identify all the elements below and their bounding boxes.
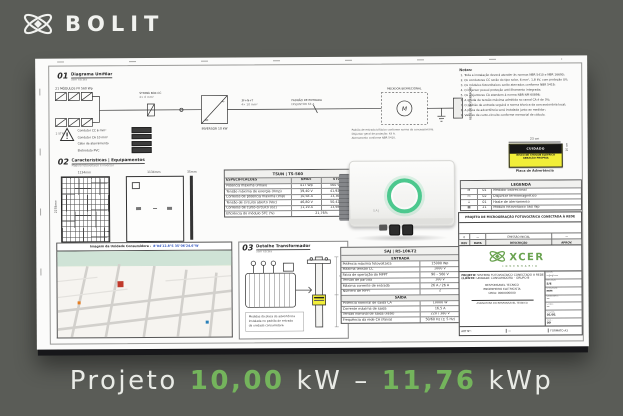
map-streets [57, 250, 233, 337]
fold-marks-top [57, 58, 562, 62]
cell: 90 – 560 V [419, 272, 459, 277]
inverter-connector [402, 224, 413, 235]
symbols-row: ⏚ 01 Haste de aterramento [461, 198, 581, 204]
cell: 1000 V [419, 267, 459, 272]
col-nmot: NMOT [291, 178, 321, 183]
junction-box [132, 182, 140, 189]
inverter-label: INVERSOR 10 kW [202, 127, 228, 131]
field: ESCALA: S/E [545, 278, 581, 286]
art-label: ART Nº: [460, 329, 506, 333]
inverter-table-row: Tensão nominal de saída (Fase) 220 / 380… [342, 311, 460, 317]
responsible-block: RESPONSÁVEL TÉCNICO ENGENHEIRO ELETRICIS… [461, 284, 543, 296]
symbols-legend-table: LEGENDA M 01 Medidor bidirecional ▭ 02 D… [460, 179, 582, 211]
mount-rail-left [136, 207, 141, 210]
legend-swatch [132, 141, 152, 147]
footer-prefix: Projeto [70, 366, 178, 396]
notes-list: Toda a instalação deverá atender às norm… [464, 72, 578, 117]
section-01-number: 01 [57, 72, 68, 79]
section-02-subtitle: Módulo fotovoltaico e inversor [71, 164, 144, 168]
section-03-box: 03 Detalhe Transformador Sem escala [238, 241, 349, 340]
field-value: mm [547, 290, 581, 293]
inverter-table-row: Potência nominal de saída CA 10000 W [342, 300, 460, 306]
field: UNIDADE: mm [546, 286, 582, 294]
cell: Corrente de curto-circuito (Isc) [225, 206, 291, 211]
symbol-qty: 21 [477, 206, 491, 211]
section-03-number: 03 [242, 244, 253, 251]
map-image [56, 250, 233, 338]
project-label: PROJETO: [461, 273, 476, 277]
revision-area: 0 — EMISSÃO INICIAL — REV DATA DESCRIÇÃO… [459, 222, 581, 245]
pv-module-front-view [61, 176, 110, 242]
inverter-gland [379, 225, 387, 231]
symbol-desc: Módulo fotovoltaico 560 Wp [491, 205, 579, 210]
diagram-obs-3: Aterramento conforme NBR 5410. [352, 135, 396, 139]
meter-title: MEDIDOR BIDIRECIONAL [387, 86, 422, 90]
cell: 2 [420, 289, 460, 294]
legend-label: Condutor CC 6 mm² [78, 128, 132, 132]
cell: Número de MPPT [342, 289, 420, 294]
cell: Tensão nominal de saída (Fase) [342, 312, 420, 317]
titleblock-fields: DATA: --/--/---- ESCALA: S/E UNIDADE: mm… [544, 271, 581, 325]
cell: 16,5 A [420, 306, 460, 311]
client-label: CLIENTE: [461, 277, 476, 281]
cell: 417 Wp [291, 184, 321, 189]
section-01-subtitle: Sem escala [71, 78, 113, 82]
titleblock-left: PROJETO: SISTEMA FOTOVOLTAICO CONECTADO … [459, 272, 544, 327]
titleblock-info: PROJETO: SISTEMA FOTOVOLTAICO CONECTADO … [459, 270, 581, 326]
module-table-row: Tensão máxima de energia (Vmp) 39,40 V 4… [225, 188, 351, 194]
field: FOLHA: 01/01 [546, 310, 582, 318]
pv-module-back-view [126, 176, 184, 242]
map-coordinates: 8°04'12.8"S 35°06'24.6"W [153, 244, 198, 248]
cell: 220 / 380 V [420, 312, 460, 317]
col-spec: ESPECIFICAÇÕES [225, 178, 291, 183]
footer-kw-unit: kW [297, 366, 343, 396]
format-label: FORMATO A3 [548, 328, 582, 332]
field: REV.: 00 [546, 318, 582, 326]
cell: Tensão de circuito aberto (Voc) [225, 200, 291, 205]
panel-front-height-dim: 2278mm [54, 200, 58, 214]
mount-rail-right [167, 207, 172, 210]
symbol-qty: 01 [477, 189, 491, 194]
plate-height-dim: 10 cm [565, 143, 569, 152]
cell: Corrente máxima de saída [342, 307, 420, 312]
map-caption: Imagem da Unidade Consumidora - [90, 244, 151, 248]
company-logo-text: XCER [509, 252, 544, 263]
atom-icon [20, 11, 56, 37]
legend-label: Cabo de aterramento [78, 141, 132, 145]
section-01-header: 01 Diagrama Unifilar Sem escala [57, 72, 112, 82]
inverter-connector [389, 224, 400, 235]
cell: Corrente de potência máxima (Imp) [225, 195, 291, 200]
meter-symbol: M [402, 106, 408, 113]
legend-label: Eletroduto PVC [78, 148, 132, 152]
symbols-row: ▭ 02 Disjuntor termomagnético [461, 193, 581, 199]
transformer-note-3: da unidade consumidora. [249, 323, 285, 327]
symbol-glyph: ⏚ [461, 200, 477, 205]
plate-line-2: GERAÇÃO PRÓPRIA [510, 156, 562, 159]
cell: 10,58 A [291, 195, 321, 200]
diagram-legend: Condutor CC 6 mm² Condutor CA 10 mm² Cab… [60, 127, 152, 153]
cell: 100 V [419, 278, 459, 283]
legend-row: Eletroduto PVC [78, 147, 152, 153]
plate-caption: Placa de Advertência [495, 168, 575, 172]
inverter-table-row: Frequência da rede CA (Faixa) 50/60 Hz (… [342, 317, 460, 323]
inverter-base [349, 218, 453, 225]
section-02-number: 02 [58, 158, 69, 165]
diagram-obs-1: Padrão de entrada trifásico conforme nor… [352, 127, 435, 132]
transformer-note-2: instalada no padrão de entrada [249, 319, 293, 323]
transformer-drawing: 0,5 m 1,8 m Medidas da placa de advertên… [243, 255, 343, 337]
company-logo-icon: XCER [488, 249, 552, 264]
section-03-subtitle: Sem escala [256, 250, 311, 254]
cell: Frequência da rede CA (Faixa) [342, 318, 420, 323]
panel-back-width-dim: 1134mm [126, 170, 182, 174]
field-value: — [547, 305, 581, 308]
note-item: Valores de curto-circuito conforme memor… [464, 112, 578, 117]
legend-swatch [132, 147, 152, 153]
field-value: 00 [547, 321, 581, 324]
field: DESENHO: — [546, 294, 582, 302]
module-table-efficiency-row: Eficiência do módulo STC (%) 21,76% [225, 210, 351, 216]
panel-thickness-dim: 35mm [183, 170, 201, 174]
legend-label: Condutor CA 10 mm² [78, 135, 132, 139]
cell: Tensão máxima de energia (Vmp) [225, 189, 291, 194]
legend-row: Condutor CC 6 mm² [78, 127, 152, 133]
cell: 46,80 V [291, 200, 321, 205]
cell: 26 A / 26 A [419, 284, 459, 289]
module-table-header: ESPECIFICAÇÕES NMOT STC [225, 177, 351, 183]
poster-canvas: BOLIT 01 Diagrama Unifilar Sem escala [0, 0, 623, 416]
company-logo-subtitle: ENGENHARIA [502, 265, 539, 268]
entry-label-2: DISJUNTOR 63 A [291, 102, 314, 106]
plate-header: CUIDADO [510, 144, 562, 153]
brand-name: BOLIT [65, 14, 164, 35]
footer-kwp-value: 11,76 [382, 366, 477, 396]
symbol-desc: Disjuntor termomagnético [491, 194, 579, 199]
ac-label-2: 4× 10 mm² [241, 102, 257, 106]
cell: Faixa de operação do MPPT [341, 273, 419, 278]
cell: Potência nominal de saída CA [342, 301, 420, 306]
location-map: Imagem da Unidade Consumidora - 8°04'12.… [56, 241, 233, 338]
symbols-row: M 01 Medidor bidirecional [461, 187, 581, 193]
module-table-row: Tensão de circuito aberto (Voc) 46,80 V … [225, 199, 351, 205]
field: CREA: — [546, 302, 582, 310]
title-block: PROJETO DE MICROGERAÇÃO FOTOVOLTAICA CON… [458, 211, 583, 336]
module-table-row: Potência máxima (Pmax) 417 Wp 560 Wp [225, 182, 351, 188]
cell: 15000 Wp [419, 261, 459, 266]
cell: Máxima corrente de entrada [341, 284, 419, 289]
section-03-header: 03 Detalhe Transformador Sem escala [242, 244, 310, 254]
fold-marks-left [39, 89, 41, 324]
field-value: 01/01 [547, 313, 581, 316]
inverter-ac-symbol: ~ [220, 100, 225, 106]
center-mark [153, 208, 157, 209]
inverter-dc-symbol: = [204, 118, 208, 124]
inverter-brand-label: SAJ [373, 209, 379, 213]
symbol-desc: Haste de aterramento [491, 199, 579, 204]
inverter-table-row: Tensão de partida 100 V [341, 277, 459, 283]
inverter-shadow [353, 234, 449, 242]
inverter-led-ring [387, 178, 422, 213]
inverter-table-row: Corrente máxima de saída 16,5 A [342, 305, 460, 311]
notes-title: Notas: [459, 67, 578, 72]
module-table-row: Corrente de potência máxima (Imp) 10,58 … [225, 193, 351, 199]
footer-kw-value: 10,00 [190, 366, 285, 396]
drawing-sheet: 01 Diagrama Unifilar Sem escala [35, 55, 589, 349]
cell: 39,40 V [291, 189, 321, 194]
section-02-header: 02 Características | Equipamentos Módulo… [58, 158, 145, 168]
footer-kwp-unit: kWp [489, 366, 554, 396]
footer-headline: Projeto 10,00 kW – 11,76 kWp [0, 366, 623, 396]
art-value: — [506, 329, 548, 333]
footer-separator: – [354, 366, 370, 396]
brand-logo: BOLIT [20, 11, 164, 37]
symbol-qty: 01 [477, 200, 491, 205]
module-table-row: Corrente de curto-circuito (Isc) 11,19 A… [225, 205, 351, 211]
pv-array-label: 21 MÓDULOS FV 560 Wp [55, 85, 92, 90]
field-value: — [547, 298, 581, 301]
legend-row: Condutor CA 10 mm² [78, 134, 152, 140]
inverter-table-row: Potência máxima fotovoltaica 15000 Wp [341, 260, 459, 266]
cell: 50/60 Hz (± 5 Hz) [420, 318, 460, 323]
client-value: UNIDADE CONSUMIDORA – GRUPO B [476, 277, 529, 280]
company-logo: XCER ENGENHARIA [459, 244, 581, 271]
symbols-row: ▦ 21 Módulo fotovoltaico 560 Wp [461, 204, 581, 210]
field-value: S/E [546, 282, 580, 285]
cell: Máxima tensão CC [341, 267, 419, 272]
inverter-table-row: Máxima tensão CC 1000 V [341, 266, 459, 272]
titleblock-bottom: ART Nº: — FORMATO A3 [460, 325, 582, 335]
inverter-table-row: Faixa de operação do MPPT 90 – 560 V [341, 271, 459, 277]
responsible-crea: CREA: 0000000000 [461, 292, 543, 296]
symbol-desc: Medidor bidirecional [491, 188, 579, 193]
warning-triangle-icon [60, 127, 75, 141]
cell: Tensão de partida [341, 278, 419, 283]
client-line: CLIENTE: UNIDADE CONSUMIDORA – GRUPO B [461, 277, 543, 281]
inverter-table-row: Máxima corrente de entrada 26 A / 26 A [341, 283, 459, 289]
symbol-qty: 02 [477, 194, 491, 199]
module-spec-table: TSUN | TS-560 ESPECIFICAÇÕES NMOT STC Po… [224, 169, 352, 218]
dc-label-2: 2× 6 mm² [139, 95, 153, 99]
field-value: --/--/---- [546, 274, 580, 277]
legend-swatch [132, 127, 152, 133]
general-notes: Notas: Toda a instalação deverá atender … [459, 67, 578, 117]
note-item: O padrão de entrada seguirá a norma técn… [464, 102, 578, 107]
signature-caption: ASSINATURA DO RESPONSÁVEL TÉCNICO [461, 302, 543, 306]
symbol-glyph: M [461, 189, 477, 194]
warning-plate: CUIDADO RISCO DE CHOQUE ELÉTRICO GERAÇÃO… [509, 143, 563, 167]
symbol-glyph: ▭ [461, 195, 477, 200]
diagram-obs-2: Disjuntor geral de proteção: 63 A. [352, 131, 396, 135]
cell: 11,19 A [291, 206, 321, 211]
cell: Potência máxima (Pmax) [225, 184, 291, 189]
symbol-glyph: ▦ [461, 206, 477, 211]
cell: Eficiência do módulo STC (%) [225, 212, 291, 217]
inverter-spec-table: SAJ | R5-10K-T2 ENTRADA Potência máxima … [340, 246, 460, 324]
inverter-table-row: Número de MPPT 2 [342, 288, 460, 294]
inverter-photo: SAJ [339, 160, 457, 243]
legend-swatch [132, 134, 152, 140]
cell: 10000 W [420, 301, 460, 306]
panel-front-width-dim: 1134mm [61, 170, 108, 174]
legend-row: Cabo de aterramento [78, 141, 152, 147]
pv-module-side-view [190, 176, 193, 240]
cell: Potência máxima fotovoltaica [341, 262, 419, 267]
